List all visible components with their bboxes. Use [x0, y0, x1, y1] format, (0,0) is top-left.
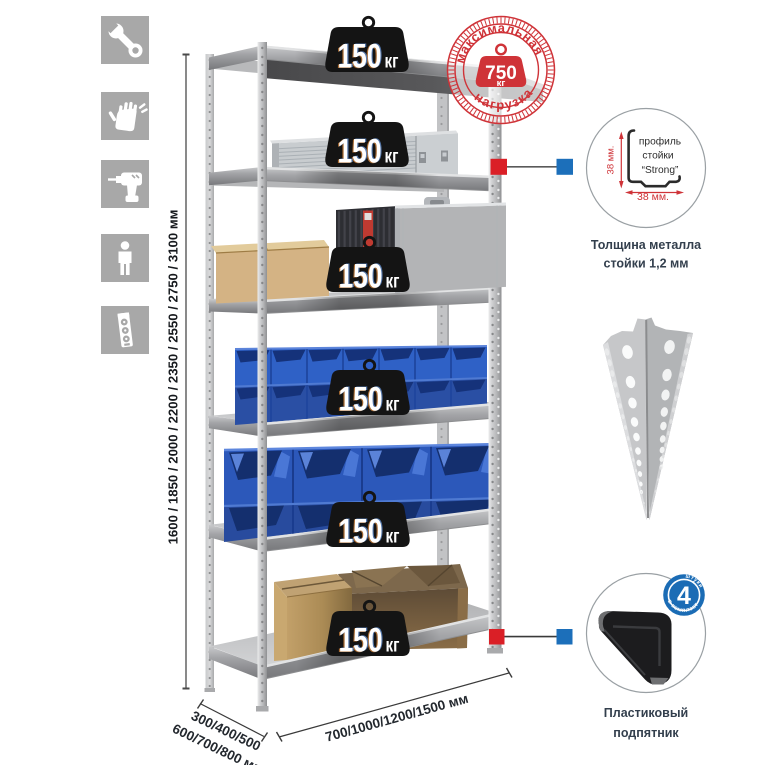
svg-text:кг: кг	[497, 78, 506, 89]
svg-text:38 мм.: 38 мм.	[606, 146, 617, 175]
svg-text:стойки: стойки	[642, 151, 673, 162]
svg-text:38 мм.: 38 мм.	[637, 191, 669, 203]
svg-text:“Strong”: “Strong”	[642, 165, 679, 176]
svg-text:Толщина металла: Толщина металла	[591, 238, 702, 252]
svg-text:4: 4	[677, 582, 691, 610]
svg-text:стойки 1,2 мм: стойки 1,2 мм	[604, 257, 689, 271]
svg-text:Пластиковый: Пластиковый	[604, 706, 688, 720]
svg-text:профиль: профиль	[639, 136, 681, 148]
svg-text:1600 / 1850 / 2000 / 2200 / 23: 1600 / 1850 / 2000 / 2200 / 2350 / 2550 …	[166, 210, 181, 545]
svg-text:подпятник: подпятник	[613, 726, 679, 740]
